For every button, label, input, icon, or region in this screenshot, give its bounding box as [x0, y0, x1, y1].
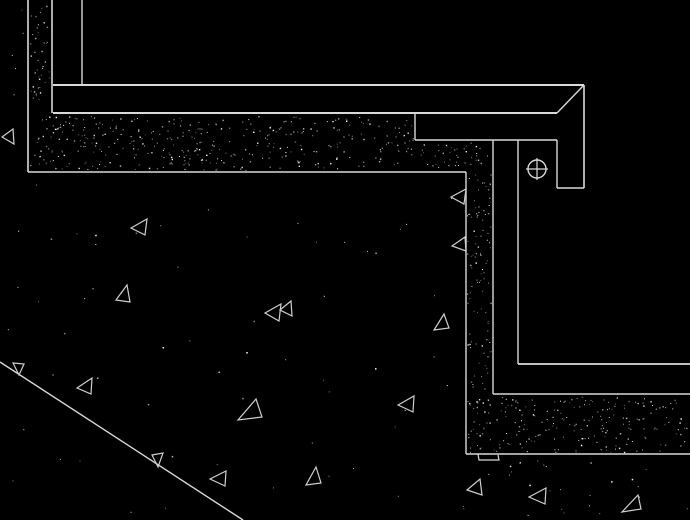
- drawing-background: [0, 0, 690, 520]
- cad-detail-drawing: [0, 0, 690, 520]
- cad-viewport[interactable]: [0, 0, 690, 520]
